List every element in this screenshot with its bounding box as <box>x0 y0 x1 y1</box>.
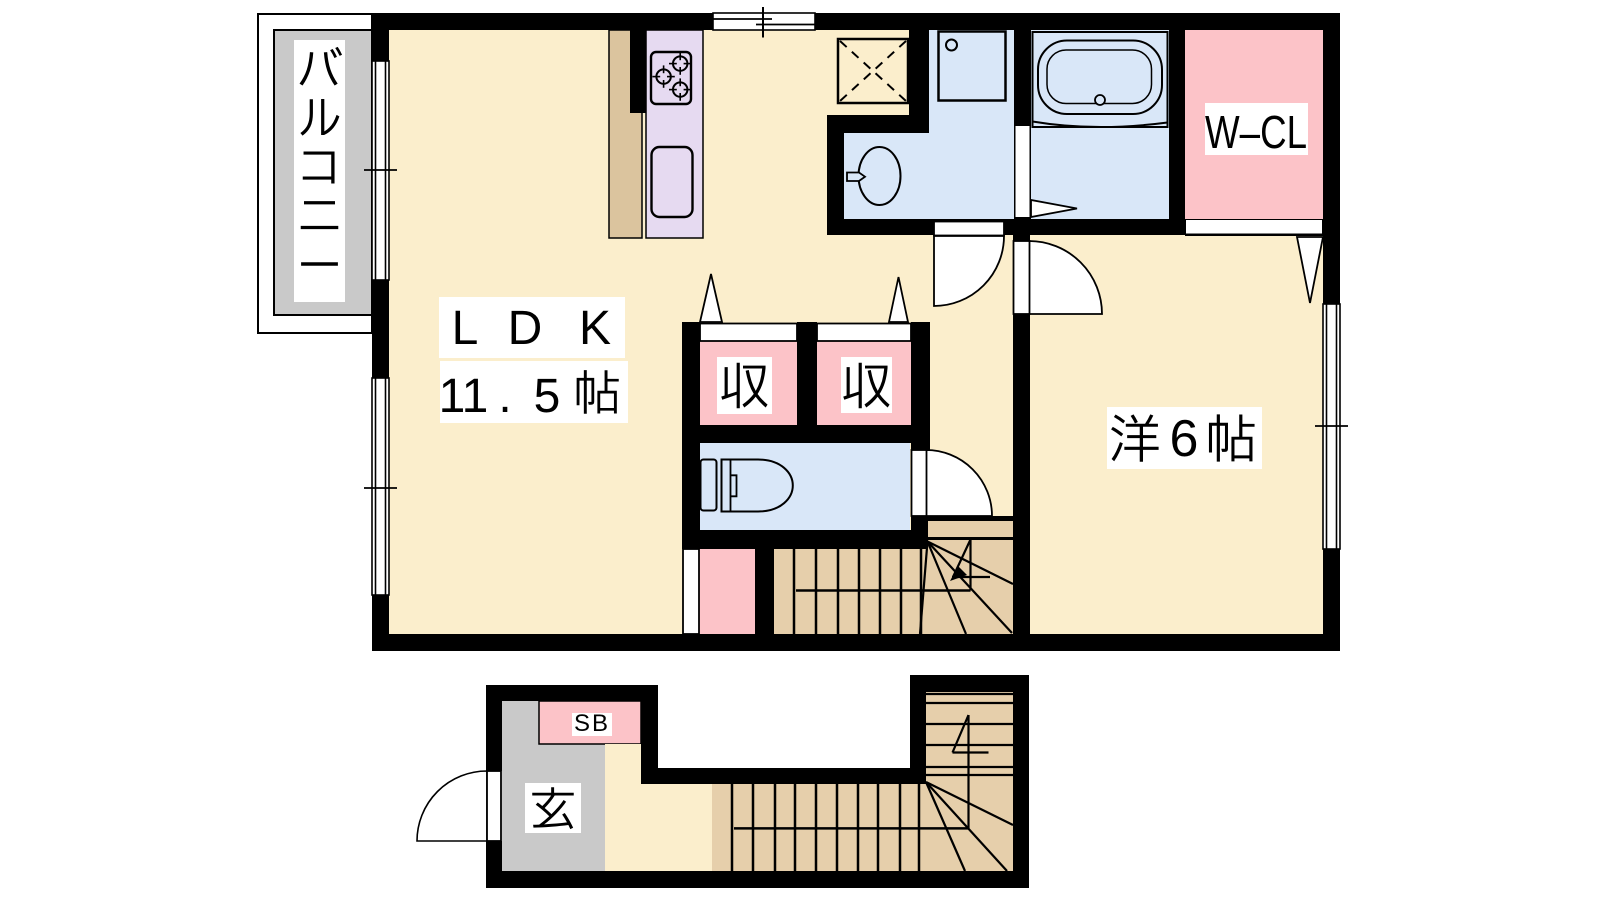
svg-text:6: 6 <box>1170 410 1199 468</box>
svg-text:5: 5 <box>534 370 561 423</box>
svg-text:SB: SB <box>574 710 610 737</box>
svg-text:K: K <box>579 302 611 355</box>
svg-text:D: D <box>508 302 543 355</box>
svg-text:L: L <box>452 302 479 355</box>
svg-text:1: 1 <box>462 370 489 423</box>
svg-text:.: . <box>498 370 511 423</box>
svg-text:W–CL: W–CL <box>1205 106 1307 158</box>
